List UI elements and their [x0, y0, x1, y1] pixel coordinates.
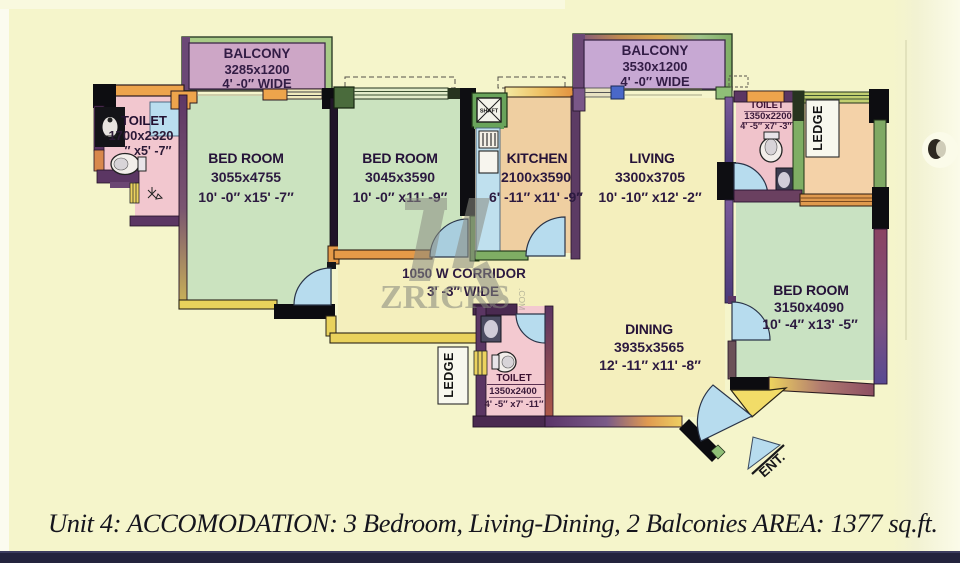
svg-text:1700x2320: 1700x2320 [108, 128, 173, 143]
svg-text:KITCHEN: KITCHEN [507, 150, 568, 166]
svg-text:10' -10″ x12' -2″: 10' -10″ x12' -2″ [598, 189, 702, 205]
svg-text:LEDGE: LEDGE [811, 105, 825, 151]
svg-text:10' -4″ x13' -5″: 10' -4″ x13' -5″ [762, 316, 858, 332]
svg-text:12' -11″ x11' -8″: 12' -11″ x11' -8″ [599, 357, 701, 373]
svg-text:LEDGE: LEDGE [442, 352, 456, 398]
svg-text:SHAFT: SHAFT [480, 109, 499, 115]
svg-text:3150x4090: 3150x4090 [774, 299, 844, 315]
svg-text:DINING: DINING [625, 321, 673, 337]
svg-text:Unit 4: ACCOMODATION: 3 Bedroo: Unit 4: ACCOMODATION: 3 Bedroom, Living-… [48, 508, 938, 538]
svg-text:TOILET: TOILET [750, 100, 784, 111]
svg-text:4' -5″ x7' -3″: 4' -5″ x7' -3″ [740, 121, 792, 131]
svg-text:TOILET: TOILET [121, 113, 167, 128]
svg-text:″ x5' -7″: ″ x5' -7″ [125, 144, 172, 158]
svg-text:1350x2400: 1350x2400 [489, 386, 537, 397]
svg-text:BED ROOM: BED ROOM [362, 150, 437, 166]
svg-text:3935x3565: 3935x3565 [614, 339, 684, 355]
svg-text:6' -11″ x11' -9″: 6' -11″ x11' -9″ [489, 189, 583, 205]
svg-text:3300x3705: 3300x3705 [615, 169, 685, 185]
svg-text:3055x4755: 3055x4755 [211, 169, 281, 185]
svg-text:TOILET: TOILET [496, 373, 531, 384]
svg-text:2100x3590: 2100x3590 [501, 169, 571, 185]
svg-text:4' -0″ WIDE: 4' -0″ WIDE [620, 74, 690, 89]
svg-text:3285x1200: 3285x1200 [224, 62, 289, 77]
svg-text:10' -0″ x15' -7″: 10' -0″ x15' -7″ [198, 189, 294, 205]
svg-text:BED ROOM: BED ROOM [208, 150, 283, 166]
svg-text:3045x3590: 3045x3590 [365, 169, 435, 185]
svg-text:BALCONY: BALCONY [622, 43, 689, 58]
svg-text:4' -5″ x7' -11″: 4' -5″ x7' -11″ [484, 399, 543, 410]
svg-text:3530x1200: 3530x1200 [622, 59, 687, 74]
svg-text:LIVING: LIVING [629, 150, 675, 166]
svg-text:BED ROOM: BED ROOM [773, 282, 848, 298]
svg-text:BALCONY: BALCONY [224, 46, 291, 61]
svg-text:.COM: .COM [517, 288, 527, 310]
svg-text:ZRICKS: ZRICKS [380, 279, 510, 316]
